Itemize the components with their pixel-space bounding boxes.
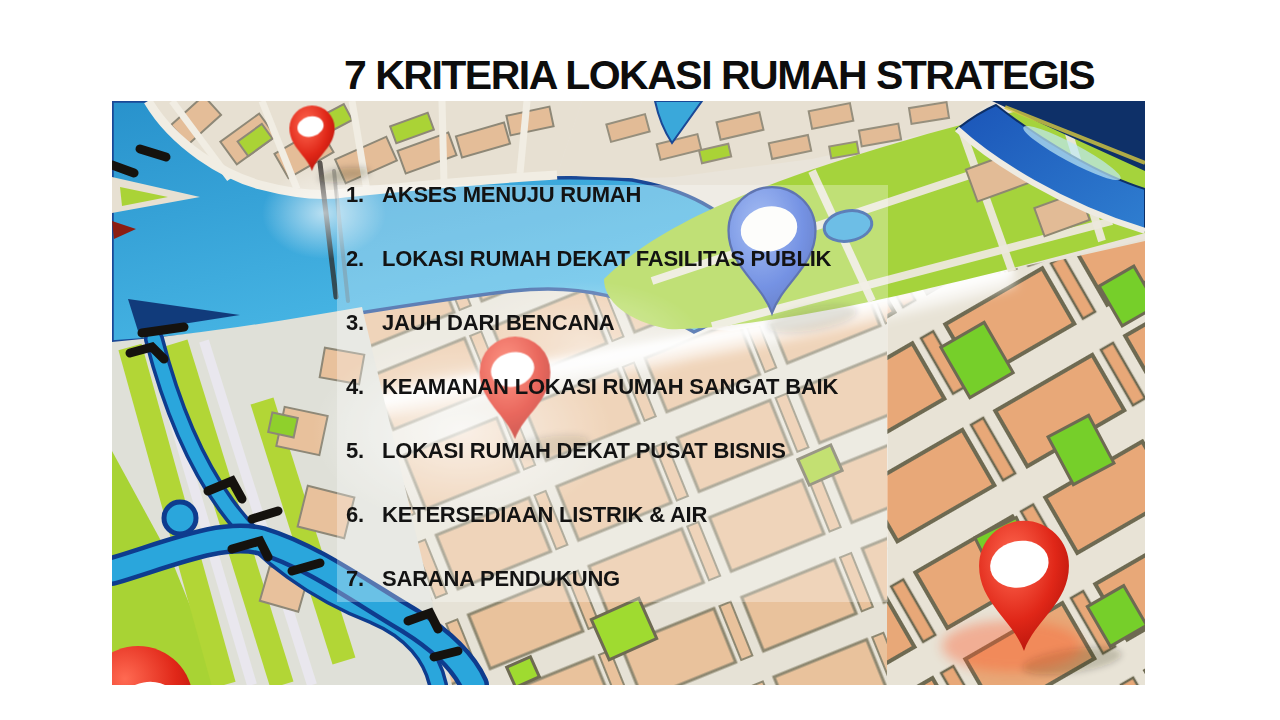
list-item-label: LOKASI RUMAH DEKAT PUSAT BISNIS (382, 439, 786, 461)
list-item-number: 7. (346, 567, 382, 589)
slide-title: 7 KRITERIA LOKASI RUMAH STRATEGIS (344, 52, 1094, 99)
list-item-number: 5. (346, 439, 382, 461)
list-item-6: 6. KETERSEDIAAN LISTRIK & AIR (346, 503, 838, 525)
list-item-label: JAUH DARI BENCANA (382, 311, 615, 333)
criteria-list: 1. AKSES MENUJU RUMAH 2. LOKASI RUMAH DE… (346, 183, 838, 631)
lake (164, 502, 196, 534)
list-item-label: AKSES MENUJU RUMAH (382, 183, 641, 205)
list-item-number: 6. (346, 503, 382, 525)
list-item-1: 1. AKSES MENUJU RUMAH (346, 183, 838, 205)
list-item-label: KEAMANAN LOKASI RUMAH SANGAT BAIK (382, 375, 838, 397)
list-item-7: 7. SARANA PENDUKUNG (346, 567, 838, 589)
list-item-3: 3. JAUH DARI BENCANA (346, 311, 838, 333)
list-item-label: SARANA PENDUKUNG (382, 567, 620, 589)
list-item-5: 5. LOKASI RUMAH DEKAT PUSAT BISNIS (346, 439, 838, 461)
list-item-4: 4. KEAMANAN LOKASI RUMAH SANGAT BAIK (346, 375, 838, 397)
list-item-number: 1. (346, 183, 382, 205)
list-item-label: KETERSEDIAAN LISTRIK & AIR (382, 503, 707, 525)
list-item-number: 4. (346, 375, 382, 397)
list-item-label: LOKASI RUMAH DEKAT FASILITAS PUBLIK (382, 247, 831, 269)
list-item-2: 2. LOKASI RUMAH DEKAT FASILITAS PUBLIK (346, 247, 838, 269)
list-item-number: 3. (346, 311, 382, 333)
list-item-number: 2. (346, 247, 382, 269)
presentation-slide: 7 KRITERIA LOKASI RUMAH STRATEGIS (0, 0, 1280, 720)
